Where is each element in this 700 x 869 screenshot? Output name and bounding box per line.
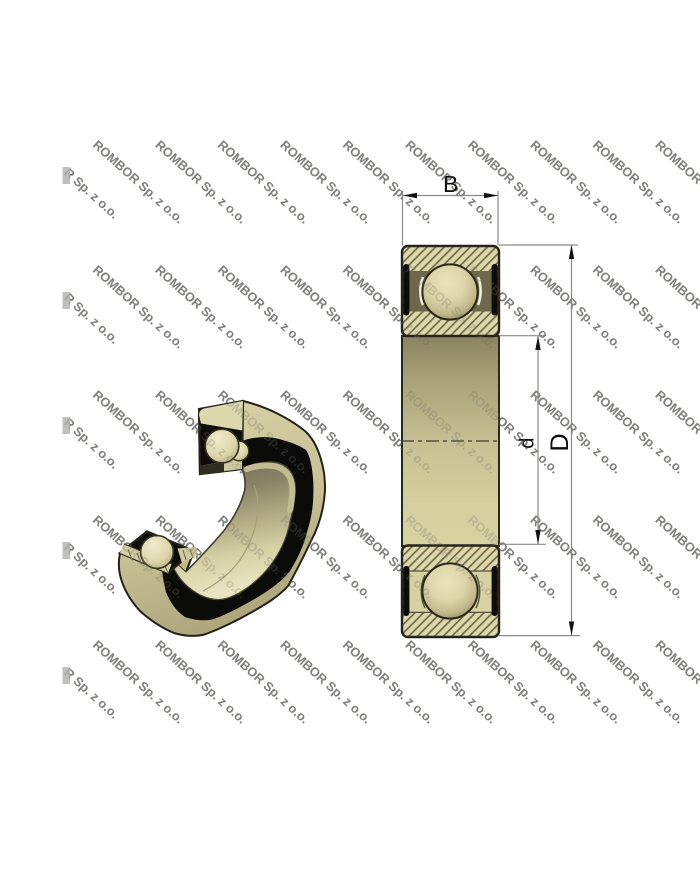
svg-text:R Sp. z o.o.: R Sp. z o.o. <box>61 166 121 222</box>
svg-text:R Sp. z o.o.: R Sp. z o.o. <box>61 416 121 472</box>
svg-text:R Sp. z o.o.: R Sp. z o.o. <box>61 291 121 347</box>
svg-text:R Sp. z o.o.: R Sp. z o.o. <box>61 666 121 722</box>
svg-text:R Sp. z o.o.: R Sp. z o.o. <box>61 541 121 597</box>
